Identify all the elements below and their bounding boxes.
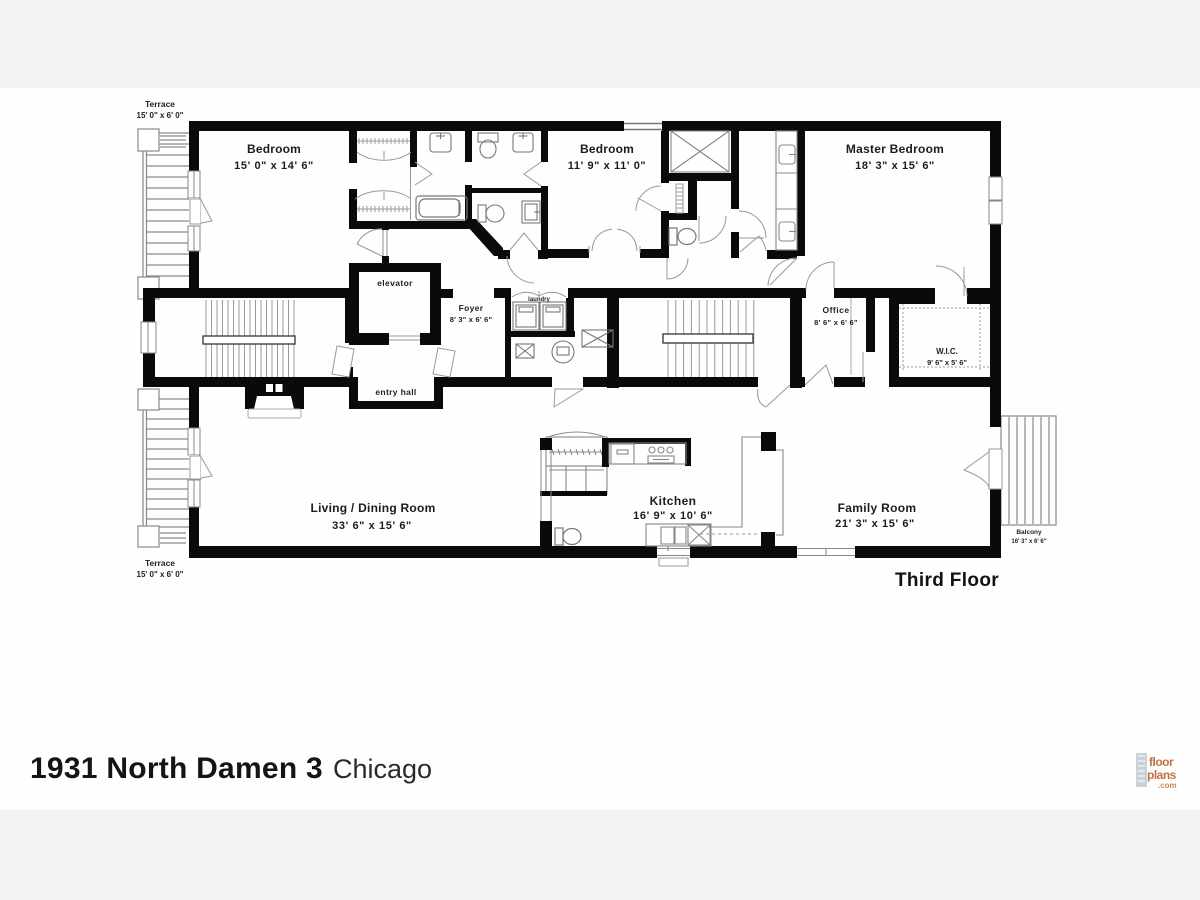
svg-text:Foyer: Foyer — [459, 303, 484, 313]
svg-text:8' 3" x 6' 6": 8' 3" x 6' 6" — [450, 315, 493, 324]
svg-text:Office: Office — [822, 305, 849, 315]
svg-text:Bedroom: Bedroom — [247, 142, 301, 156]
svg-text:floor: floor — [1149, 755, 1174, 769]
svg-text:1931 North Damen 3: 1931 North Damen 3 — [30, 752, 323, 785]
svg-text:W.I.C.: W.I.C. — [936, 347, 958, 356]
svg-text:plans: plans — [1147, 768, 1177, 782]
svg-text:elevator: elevator — [377, 278, 413, 288]
svg-text:Master Bedroom: Master Bedroom — [846, 142, 944, 156]
svg-text:18' 3" x 15' 6": 18' 3" x 15' 6" — [855, 160, 935, 172]
svg-text:Bedroom: Bedroom — [580, 142, 634, 156]
svg-text:entry hall: entry hall — [375, 387, 416, 397]
svg-text:16' 3" x 6' 6": 16' 3" x 6' 6" — [1011, 539, 1046, 545]
svg-text:Third Floor: Third Floor — [895, 570, 999, 591]
svg-text:16' 9" x 10' 6": 16' 9" x 10' 6" — [633, 510, 713, 522]
svg-text:11' 9" x 11' 0": 11' 9" x 11' 0" — [568, 160, 647, 172]
svg-text:Terrace: Terrace — [145, 99, 175, 109]
svg-text:9' 6" x 5' 6": 9' 6" x 5' 6" — [927, 358, 967, 367]
svg-text:15' 0" x 14' 6": 15' 0" x 14' 6" — [234, 160, 314, 172]
svg-text:.com: .com — [1158, 781, 1177, 790]
svg-text:8' 6" x 6' 6": 8' 6" x 6' 6" — [814, 318, 858, 327]
svg-text:33' 6" x 15' 6": 33' 6" x 15' 6" — [332, 520, 412, 532]
svg-text:Family Room: Family Room — [838, 501, 917, 515]
svg-text:15' 0" x 6' 0": 15' 0" x 6' 0" — [137, 111, 184, 120]
svg-text:21' 3" x 15' 6": 21' 3" x 15' 6" — [835, 518, 915, 530]
svg-text:15' 0" x 6' 0": 15' 0" x 6' 0" — [137, 570, 184, 579]
svg-text:laundry: laundry — [528, 297, 550, 303]
svg-text:Chicago: Chicago — [333, 754, 432, 784]
svg-text:Kitchen: Kitchen — [650, 494, 697, 508]
svg-text:Balcony: Balcony — [1016, 529, 1042, 536]
svg-text:Terrace: Terrace — [145, 558, 175, 568]
svg-text:Living / Dining Room: Living / Dining Room — [311, 501, 436, 515]
